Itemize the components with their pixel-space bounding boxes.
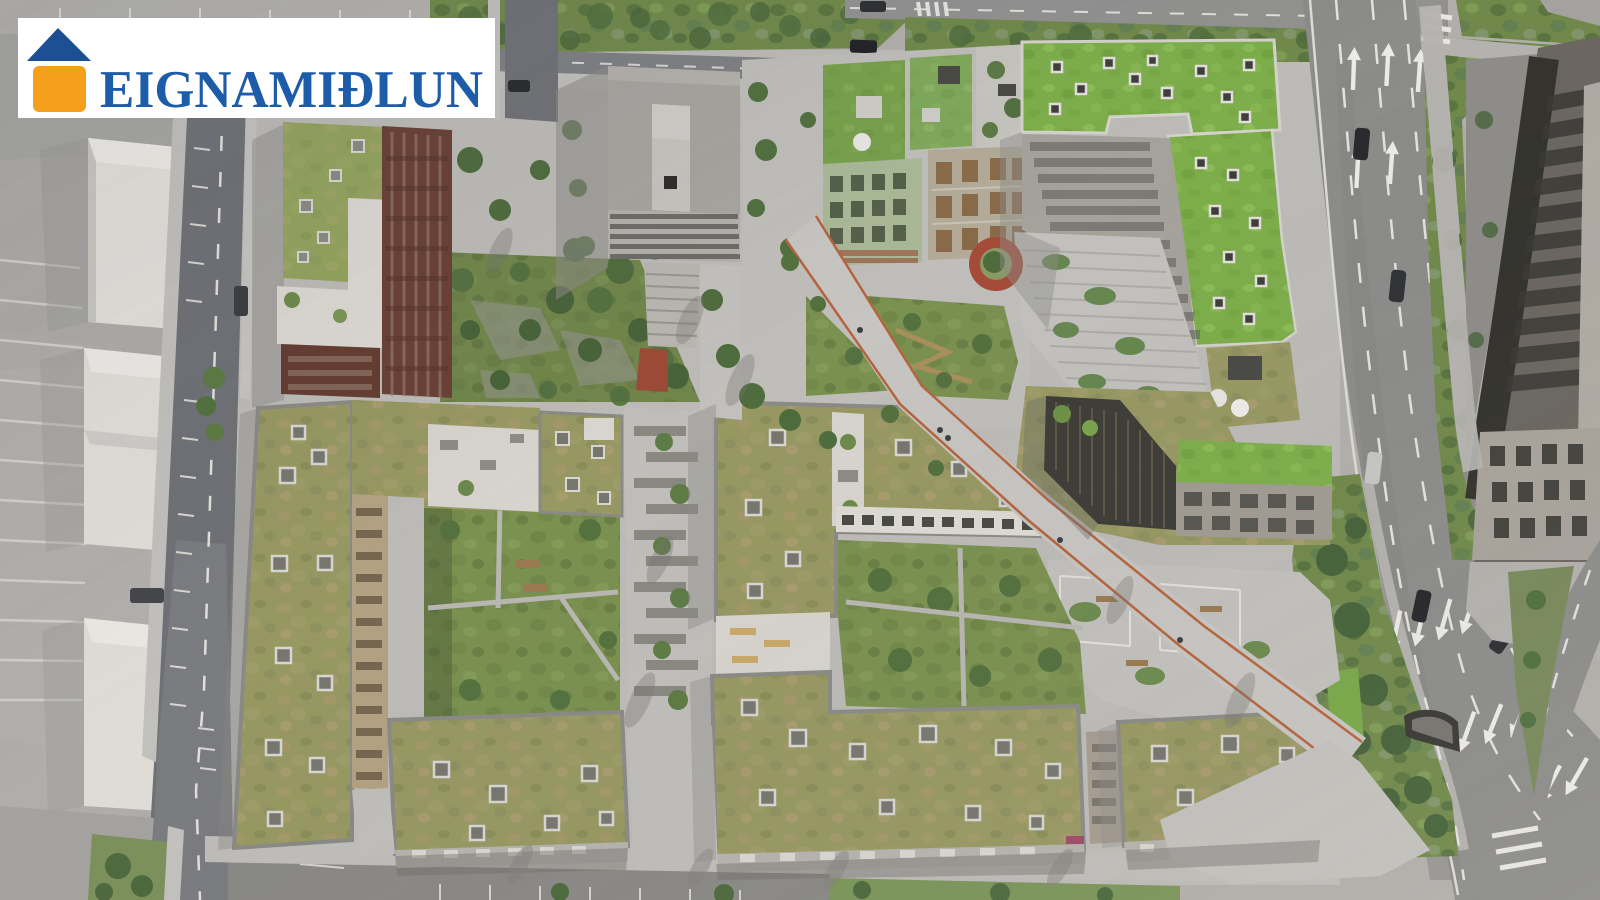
svg-text:EIGNAMIÐLUN: EIGNAMIÐLUN	[100, 61, 483, 119]
